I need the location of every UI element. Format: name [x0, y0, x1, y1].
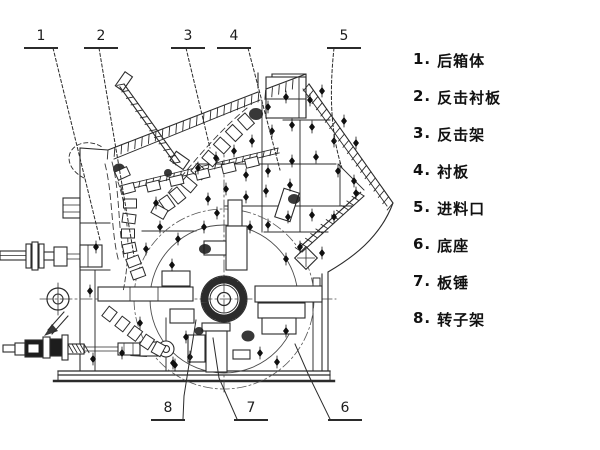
crusher-diagram: 1 2 3 4 5 8 7 6 1.后箱体 2.反击衬板 3.反击架 4.衬板 … [0, 0, 600, 450]
callout-7: 7 [234, 400, 268, 421]
legend: 1.后箱体 2.反击衬板 3.反击架 4.衬板 5.进料口 6.底座 7.板锤 … [413, 50, 501, 346]
legend-item-2: 2.反击衬板 [413, 87, 501, 124]
feed-inlet [258, 73, 330, 120]
legend-item-3: 3.反击架 [413, 124, 501, 161]
legend-item-7: 7.板锤 [413, 272, 501, 309]
legend-item-4: 4.衬板 [413, 161, 501, 198]
callout-1: 1 [24, 28, 58, 49]
leader-1 [53, 48, 100, 240]
callout-8: 8 [151, 400, 185, 421]
legend-item-8: 8.转子架 [413, 309, 501, 346]
callout-5: 5 [327, 28, 361, 49]
callout-4: 4 [217, 28, 251, 49]
legend-item-6: 6.底座 [413, 235, 501, 272]
upper-tension-rod [0, 242, 102, 270]
leader-3 [186, 48, 210, 148]
pivot-crosshair [47, 283, 69, 334]
crusher-drawing [0, 0, 600, 450]
hanger-rod [115, 72, 189, 170]
chute-diagonal [295, 247, 318, 270]
legend-item-1: 1.后箱体 [413, 50, 501, 87]
callout-2: 2 [84, 28, 118, 49]
callout-3: 3 [171, 28, 205, 49]
legend-item-5: 5.进料口 [413, 198, 501, 235]
base [54, 371, 334, 381]
leader-5 [331, 48, 342, 168]
callout-6: 6 [328, 400, 362, 421]
